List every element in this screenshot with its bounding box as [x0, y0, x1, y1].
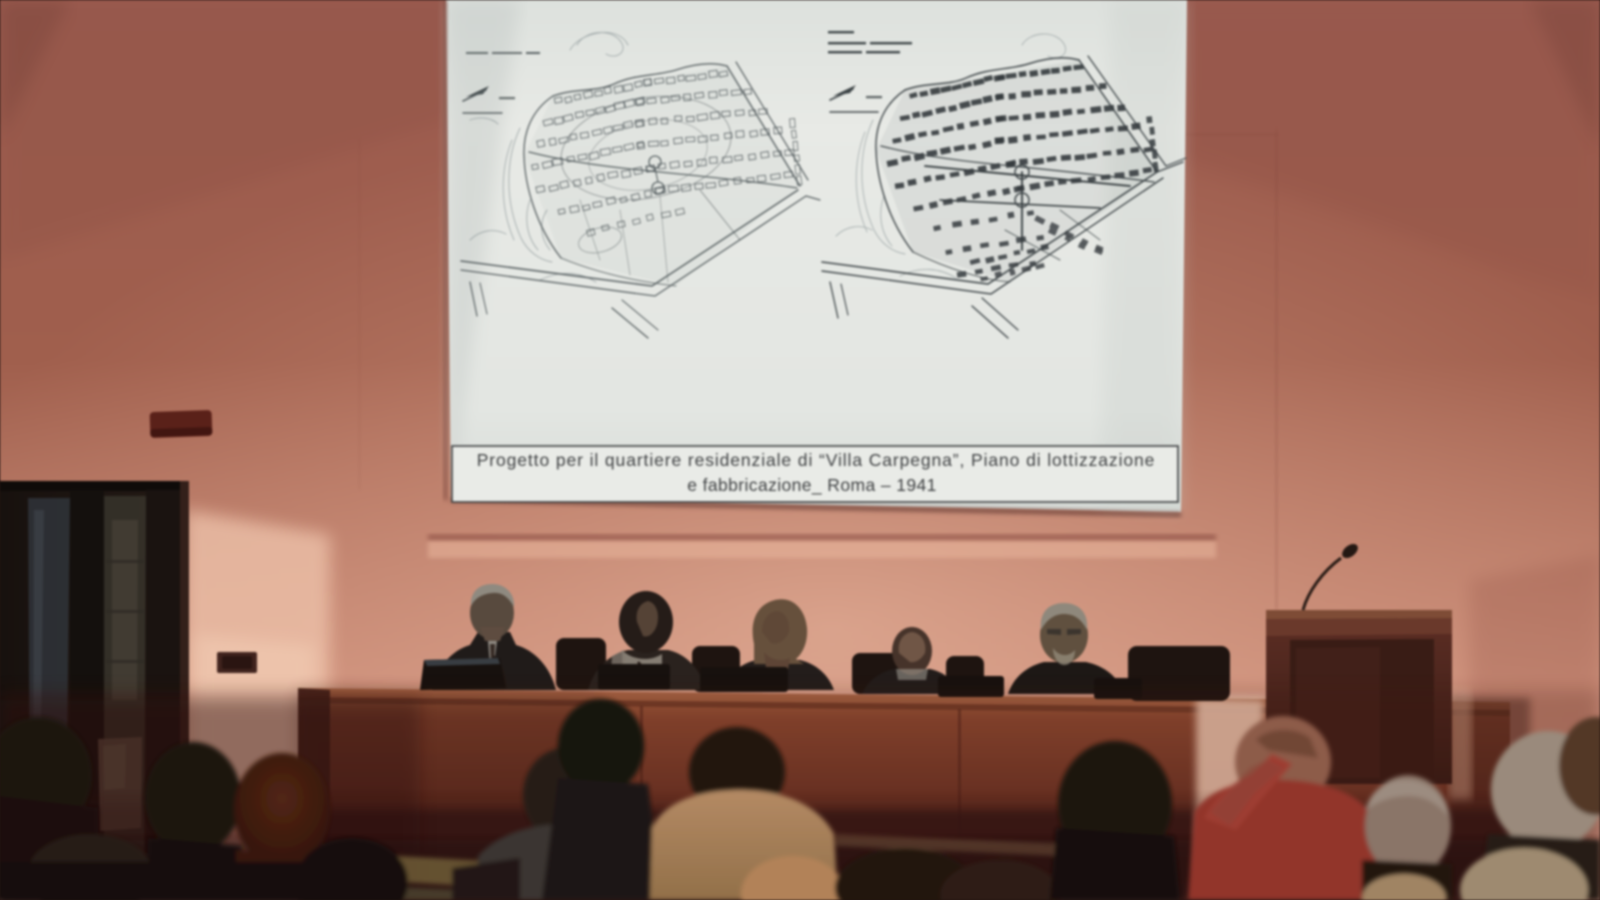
- svg-text:Progetto per il quartiere resi: Progetto per il quartiere residenziale d…: [477, 450, 1156, 470]
- svg-text:e fabbricazione_ Roma – 1941: e fabbricazione_ Roma – 1941: [687, 475, 937, 496]
